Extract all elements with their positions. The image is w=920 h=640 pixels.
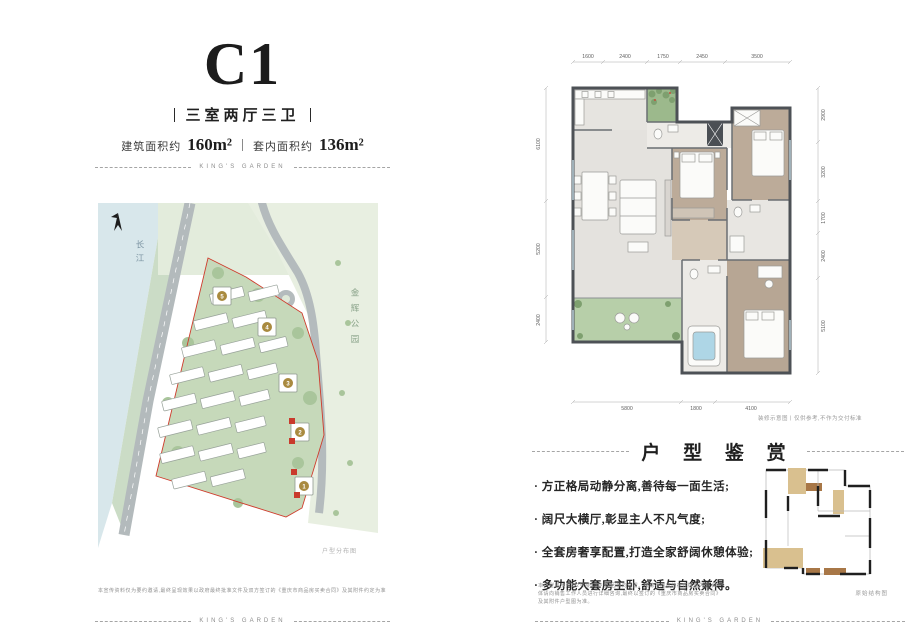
dim-top-4: 2450 (696, 54, 708, 60)
dim-left-1: 6100 (536, 138, 542, 150)
inner-area-label: 套内面积约 (253, 138, 313, 154)
dim-right-4: 2400 (821, 250, 827, 262)
unit-name: C1 (95, 34, 390, 94)
structure-diagram (748, 456, 888, 586)
elevator-shaft (707, 122, 723, 146)
brochure-page: C1 三室两厅三卫 建筑面积约 160m² 套内面积约 136m² KING'S… (0, 0, 920, 640)
dim-bottom-3: 4100 (745, 406, 757, 412)
subtitle-bar (174, 108, 175, 122)
park-label: 金辉公园 (349, 288, 361, 350)
brand-divider-bottom-right: KING'S GARDEN (535, 618, 905, 624)
dim-top-5: 3500 (751, 54, 763, 60)
structure-caption: 原始结构图 (800, 589, 888, 597)
dim-top-2: 2400 (619, 54, 631, 60)
dim-top-3: 1750 (657, 54, 669, 60)
site-map-caption: 户型分布图 (322, 546, 357, 555)
inner-area-value: 136m² (319, 135, 364, 155)
dim-bottom-2: 1800 (690, 406, 702, 412)
brand-divider-bottom-left: KING'S GARDEN (95, 618, 390, 624)
dim-left-3: 2400 (536, 314, 542, 326)
layout-subtitle-row: 三室两厅三卫 (95, 104, 390, 125)
bullet-item: · 全套房奢享配置,打造全家舒阔休憩体验; (534, 544, 759, 560)
dim-right-2: 3200 (821, 166, 827, 178)
dim-right-5: 5100 (821, 320, 827, 332)
subtitle-bar (310, 108, 311, 122)
dim-bottom-1: 5800 (621, 406, 633, 412)
bullet-item: · 阔尺大横厅,彰显主人不凡气度; (534, 511, 759, 527)
dim-top-1: 1600 (582, 54, 594, 60)
area-row: 建筑面积约 160m² 套内面积约 136m² (95, 135, 390, 155)
bullet-item: · 方正格局动静分离,善待每一面生活; (534, 478, 759, 494)
area-separator (242, 139, 243, 151)
dim-right-1: 2900 (821, 109, 827, 121)
right-disclaimer: 本户型展示为1/2号楼C1户型,因朝向位置、楼栋不同可能存在镜像户型,具体请向销… (538, 582, 720, 606)
layout-subtitle: 三室两厅三卫 (185, 104, 299, 125)
river-label: 长江 (134, 240, 146, 267)
dim-right-3: 1700 (821, 212, 827, 224)
floorplan: 1600 2400 1750 2450 3500 5800 1800 4100 … (522, 30, 912, 440)
build-area-value: 160m² (187, 135, 232, 155)
floorplan-caption: 装修示意图丨仅供参考,不作为交付标准 (758, 414, 862, 422)
brand-divider-top: KING'S GARDEN (95, 164, 390, 170)
dim-left-2: 5200 (536, 243, 542, 255)
unit-title-block: C1 三室两厅三卫 建筑面积约 160m² 套内面积约 136m² (95, 34, 390, 155)
left-disclaimer: 本宣传资料仅为要约邀请,最终呈现效果以政府最终批准文件及双方签订的《重庆市商品房… (92, 587, 392, 595)
build-area-label: 建筑面积约 (121, 138, 181, 154)
